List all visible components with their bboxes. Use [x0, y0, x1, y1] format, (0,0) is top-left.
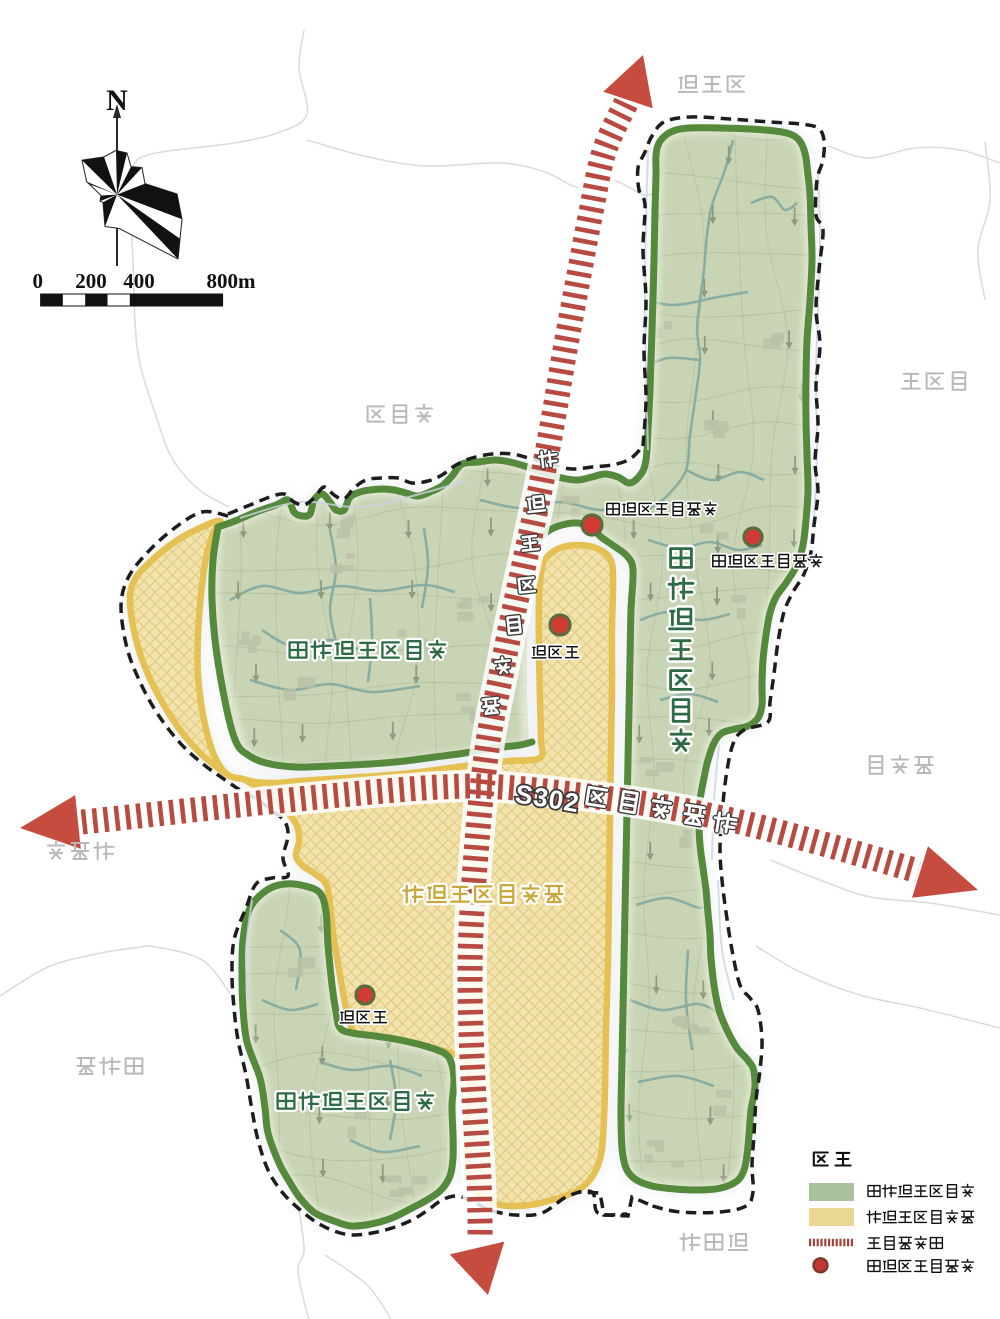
- svg-text:800m: 800m: [207, 269, 257, 293]
- svg-text:N: N: [106, 84, 128, 117]
- svg-text:400: 400: [123, 269, 155, 293]
- svg-text:200: 200: [75, 269, 107, 293]
- svg-text:0: 0: [32, 269, 43, 293]
